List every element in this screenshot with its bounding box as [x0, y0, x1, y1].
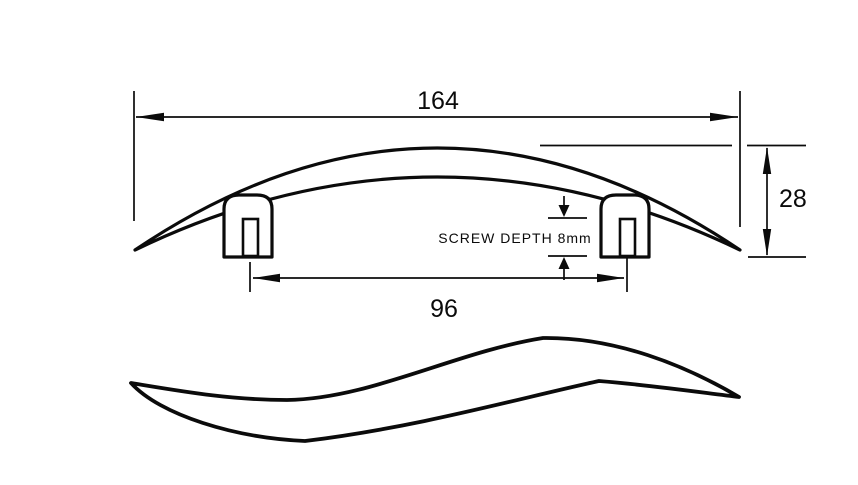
left-arrowhead-icon: [253, 274, 280, 282]
up-arrowhead-icon: [559, 257, 570, 269]
handle-plan-outline: [131, 338, 739, 441]
fixing-centres-label: 96: [430, 295, 458, 323]
down-arrowhead-icon: [763, 229, 771, 256]
fixing-centres-dimension: 96: [250, 258, 627, 323]
overall-length-label: 164: [417, 87, 459, 115]
plan-profile-view: [131, 338, 739, 441]
right-arrowhead-icon: [597, 274, 624, 282]
down-arrowhead-icon: [559, 205, 570, 217]
up-arrowhead-icon: [763, 147, 771, 174]
left-mounting-post: [224, 195, 272, 257]
height-label: 28: [779, 185, 807, 213]
technical-drawing: 164 28 96 SCREW: [0, 0, 858, 485]
drawing-canvas: 164 28 96 SCREW: [0, 0, 858, 485]
screw-depth-annotation: SCREW DEPTH 8mm: [438, 196, 591, 280]
screw-depth-label: SCREW DEPTH 8mm: [438, 230, 591, 246]
right-arrowhead-icon: [710, 113, 738, 121]
left-arrowhead-icon: [136, 113, 164, 121]
right-mounting-post: [601, 195, 649, 257]
